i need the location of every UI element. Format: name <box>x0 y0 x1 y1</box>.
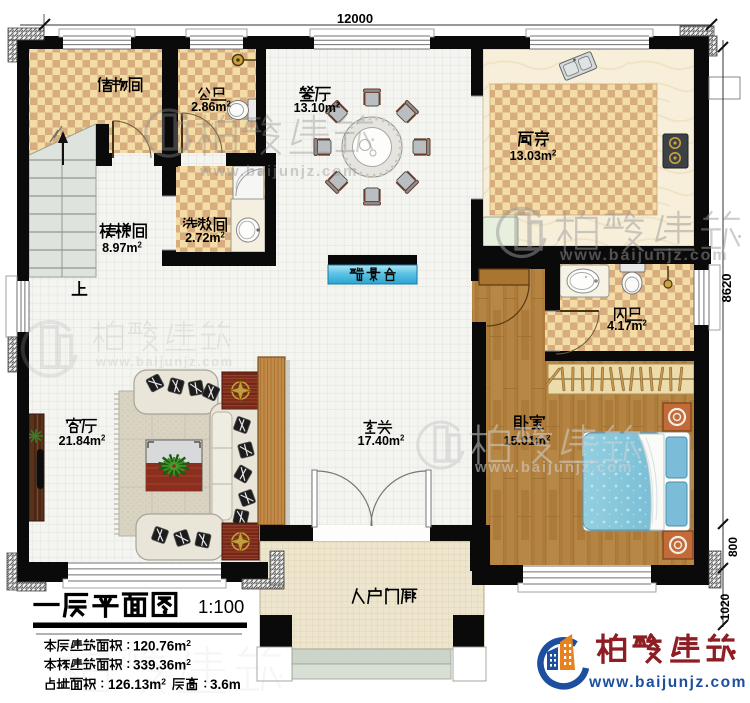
svg-text:www.baijunjz.com: www.baijunjz.com <box>588 674 747 691</box>
svg-text:1:100: 1:100 <box>198 596 244 617</box>
svg-text:120.76m2: 120.76m2 <box>133 638 191 654</box>
svg-text:21.84m2: 21.84m2 <box>59 434 106 448</box>
svg-text:3.6m: 3.6m <box>210 677 241 692</box>
svg-text:www.baijunjz.com: www.baijunjz.com <box>474 459 633 476</box>
svg-text:8620: 8620 <box>719 274 734 303</box>
svg-text:2.86m2: 2.86m2 <box>191 100 231 114</box>
svg-text:13.03m2: 13.03m2 <box>510 149 557 163</box>
svg-text:800: 800 <box>726 537 740 557</box>
svg-text:www.baijunjz.com: www.baijunjz.com <box>95 354 234 369</box>
svg-text:339.36m2: 339.36m2 <box>133 657 191 673</box>
svg-text:126.13m2: 126.13m2 <box>108 677 166 693</box>
svg-text:12000: 12000 <box>337 11 373 26</box>
svg-text:2.72m2: 2.72m2 <box>185 231 225 245</box>
svg-text:www.baijunjz.com: www.baijunjz.com <box>559 247 729 264</box>
svg-text:8.97m2: 8.97m2 <box>102 241 142 255</box>
svg-text:13.10m2: 13.10m2 <box>294 101 341 115</box>
svg-text:1020: 1020 <box>718 593 732 620</box>
svg-text:www.baijunjz.com: www.baijunjz.com <box>199 163 358 180</box>
svg-text:17.40m2: 17.40m2 <box>358 434 405 448</box>
svg-text:4.17m2: 4.17m2 <box>607 319 647 333</box>
